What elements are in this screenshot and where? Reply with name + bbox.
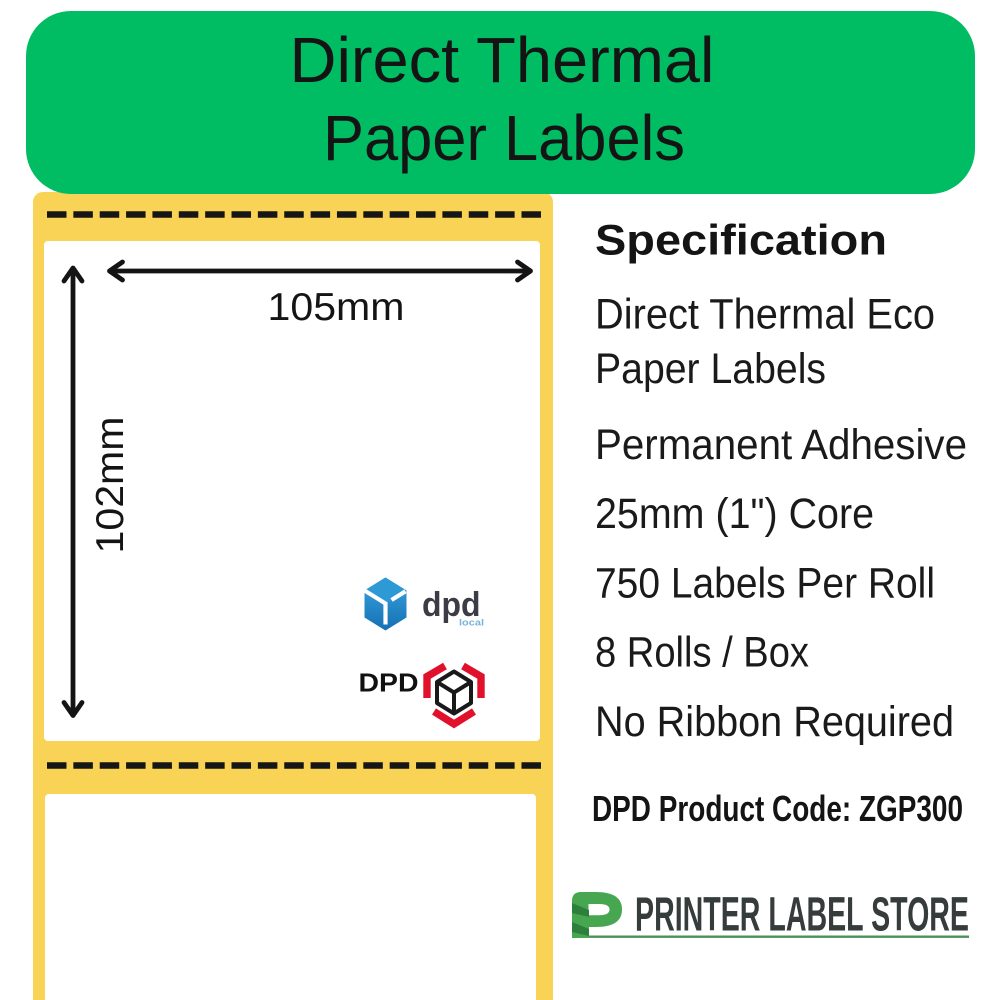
svg-text:Permanent Adhesive: Permanent Adhesive	[595, 421, 967, 469]
svg-text:Paper Labels: Paper Labels	[323, 102, 685, 174]
svg-text:PRINTER LABEL STORE: PRINTER LABEL STORE	[635, 888, 969, 941]
svg-text:8 Rolls / Box: 8 Rolls / Box	[595, 629, 809, 677]
svg-text:25mm (1") Core: 25mm (1") Core	[595, 490, 874, 538]
svg-text:105mm: 105mm	[268, 286, 405, 329]
svg-text:102mm: 102mm	[89, 417, 132, 554]
svg-text:Paper Labels: Paper Labels	[595, 345, 826, 393]
svg-text:No Ribbon Required: No Ribbon Required	[595, 698, 954, 746]
svg-text:local: local	[459, 618, 484, 629]
svg-text:Specification: Specification	[595, 217, 887, 265]
svg-text:DPD: DPD	[359, 667, 419, 697]
svg-text:Direct Thermal: Direct Thermal	[290, 24, 715, 96]
svg-text:Direct Thermal Eco: Direct Thermal Eco	[595, 290, 935, 338]
svg-text:DPD Product Code: ZGP300: DPD Product Code: ZGP300	[592, 788, 963, 829]
svg-text:750 Labels Per Roll: 750 Labels Per Roll	[595, 559, 935, 607]
